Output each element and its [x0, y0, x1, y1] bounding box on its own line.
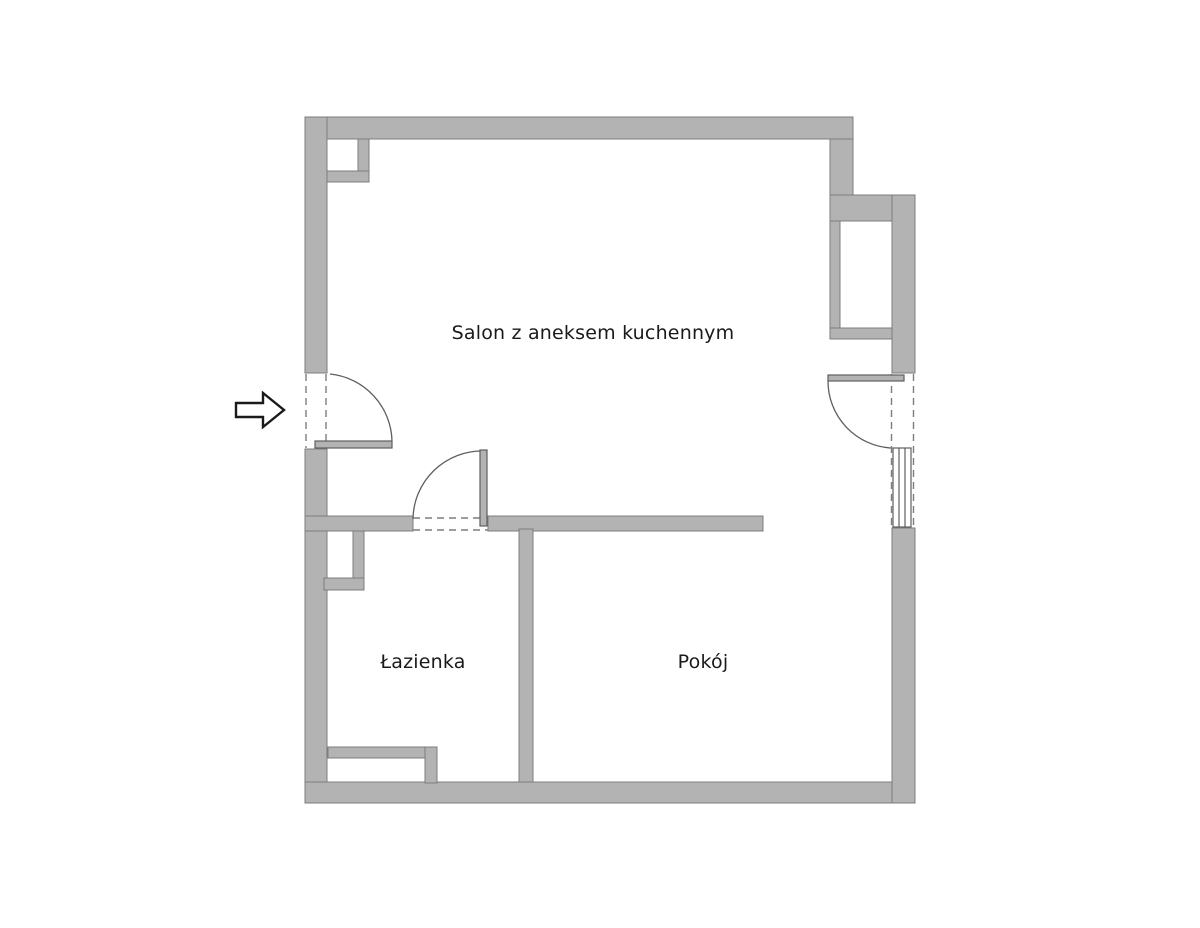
wall-bath-recess-hbar — [328, 747, 437, 758]
wall-bath-duct-hbar — [324, 578, 364, 590]
entrance-door-swing-arc — [330, 374, 392, 441]
wall-bottom-wall — [305, 782, 915, 803]
wall-bathroom-top-wall — [305, 516, 413, 531]
floorplan-drawing — [0, 0, 1200, 928]
wall-bathroom-pokoj-wall — [519, 529, 533, 782]
floorplan-canvas: Salon z aneksem kuchennym Łazienka Pokój — [0, 0, 1200, 928]
bathroom-door-swing-arc — [413, 451, 483, 519]
entrance-arrow-icon — [236, 393, 284, 427]
room-label-lazienka: Łazienka — [380, 651, 465, 673]
wall-top-wall — [305, 117, 853, 139]
room-label-pokoj: Pokój — [678, 651, 729, 673]
wall-left-wall-upper — [305, 117, 327, 373]
wall-left-wall-lower — [305, 449, 327, 803]
wall-shaft-left-strip — [830, 221, 840, 339]
wall-step-out-vertical — [830, 139, 853, 195]
right-window-frame — [893, 448, 911, 527]
wall-corner-duct-hbar — [327, 171, 369, 182]
balcony-door-leaf — [828, 375, 904, 381]
room-label-salon: Salon z aneksem kuchennym — [452, 322, 735, 344]
entrance-door-leaf — [315, 441, 392, 448]
window-layer — [893, 448, 911, 527]
balcony-door-swing-arc — [828, 381, 891, 448]
wall-shaft-bottom-band — [830, 328, 892, 339]
entrance-arrow-shape — [236, 393, 284, 427]
wall-bath-recess-vbar — [425, 747, 437, 783]
walls-layer — [305, 117, 915, 803]
bathroom-door-leaf — [480, 450, 487, 526]
doors-layer — [315, 374, 904, 526]
openings-layer — [306, 374, 914, 530]
wall-right-wall-lower — [892, 528, 915, 803]
wall-right-wall-upper — [892, 195, 915, 373]
